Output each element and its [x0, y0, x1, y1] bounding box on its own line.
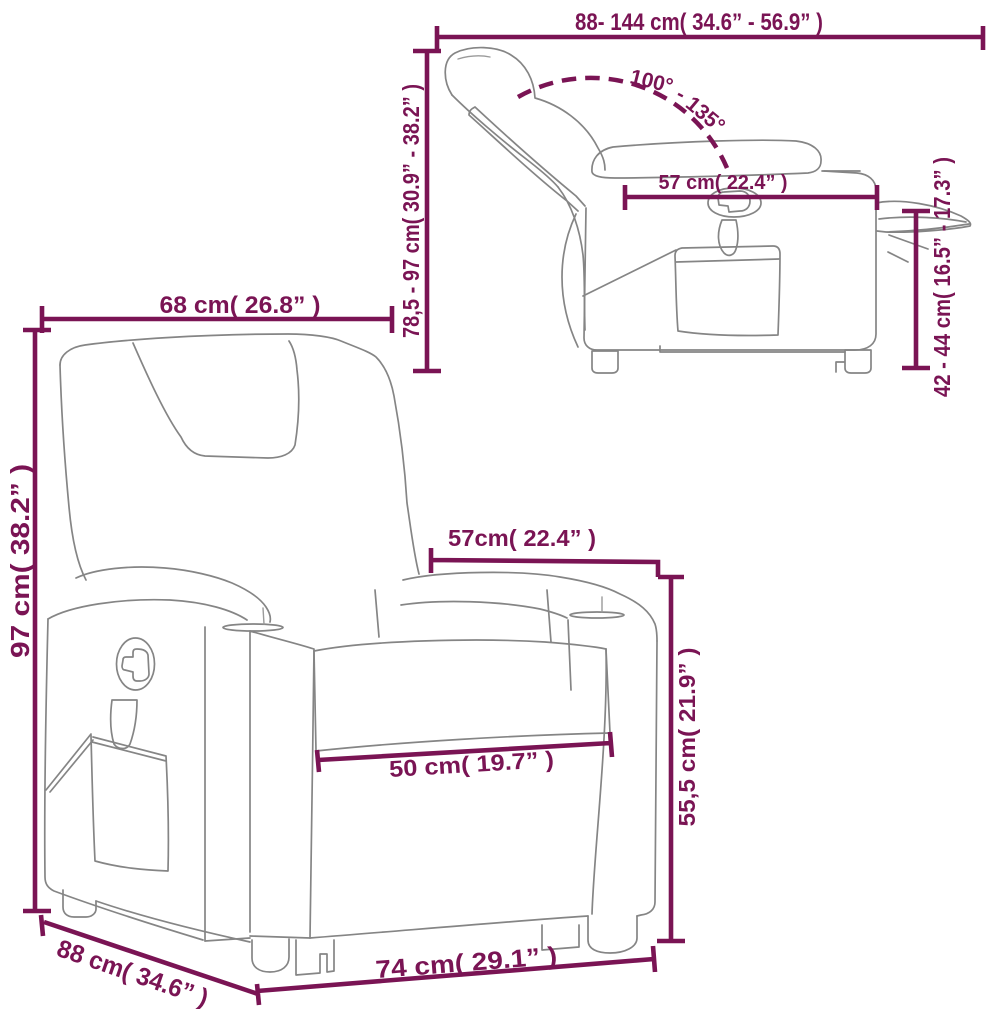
svg-text:88- 144 cm( 34.6” - 56.9” ): 88- 144 cm( 34.6” - 56.9” )	[575, 9, 823, 36]
svg-text:97 cm( 38.2” ): 97 cm( 38.2” )	[5, 464, 35, 658]
svg-text:55,5 cm( 21.9” ): 55,5 cm( 21.9” )	[674, 648, 700, 827]
svg-text:57 cm( 22.4” ): 57 cm( 22.4” )	[659, 172, 788, 194]
svg-text:68 cm( 26.8” ): 68 cm( 26.8” )	[160, 292, 321, 319]
svg-text:57cm( 22.4” ): 57cm( 22.4” )	[448, 525, 596, 551]
svg-text:42 - 44 cm( 16.5” - 17.3” ): 42 - 44 cm( 16.5” - 17.3” )	[929, 157, 955, 397]
svg-text:78,5 - 97 cm( 30.9” - 38.2” ): 78,5 - 97 cm( 30.9” - 38.2” )	[398, 84, 424, 338]
